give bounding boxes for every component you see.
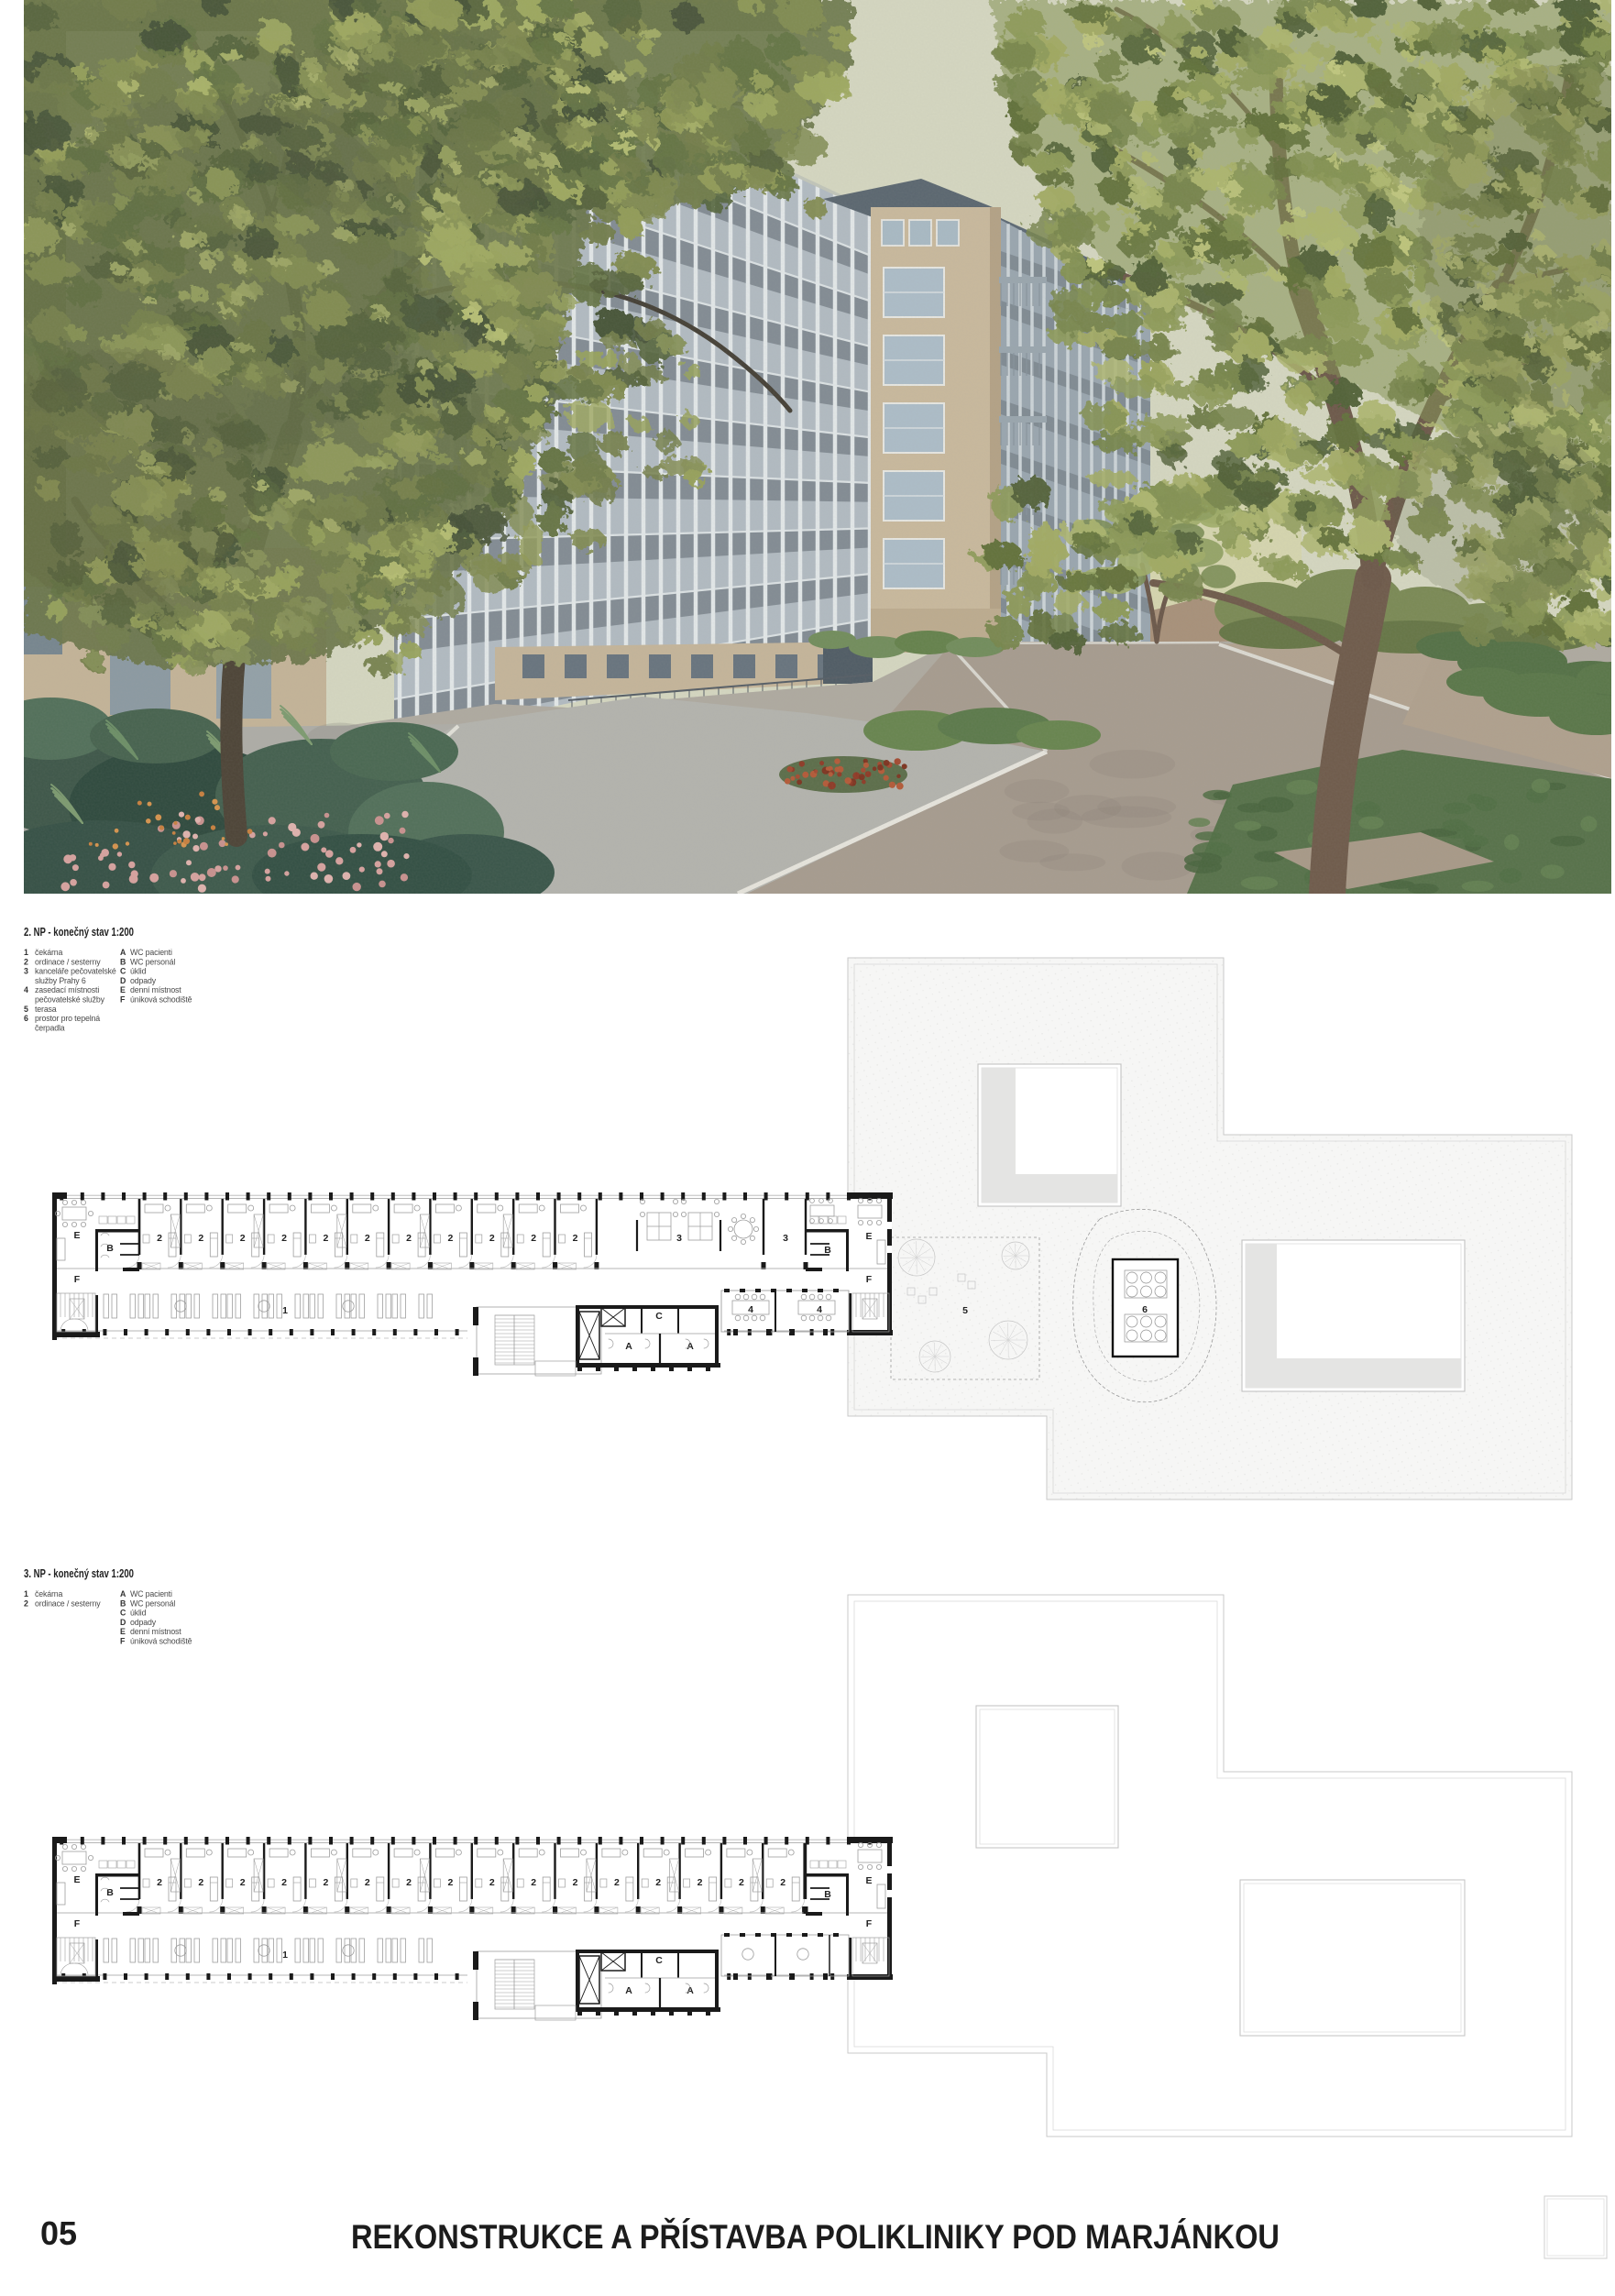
svg-text:2: 2 <box>655 1877 661 1888</box>
svg-text:WC personál: WC personál <box>130 1598 175 1608</box>
svg-text:2: 2 <box>157 1233 162 1244</box>
svg-text:REKONSTRUKCE A PŘÍSTAVBA POLIK: REKONSTRUKCE A PŘÍSTAVBA POLIKLINIKY POD… <box>351 2217 1280 2256</box>
svg-text:E: E <box>73 1874 80 1885</box>
svg-text:4: 4 <box>817 1304 822 1315</box>
svg-text:2: 2 <box>614 1877 620 1888</box>
svg-text:2: 2 <box>365 1233 370 1244</box>
svg-text:2: 2 <box>531 1877 536 1888</box>
svg-text:1: 1 <box>282 1305 288 1316</box>
svg-text:čerpadla: čerpadla <box>35 1023 65 1032</box>
svg-text:1: 1 <box>24 1589 28 1598</box>
svg-text:2: 2 <box>406 1233 412 1244</box>
svg-text:čekárna: čekárna <box>35 948 63 957</box>
svg-text:čekárna: čekárna <box>35 1589 63 1598</box>
svg-text:2: 2 <box>198 1233 203 1244</box>
svg-text:služby Prahy 6: služby Prahy 6 <box>35 976 86 985</box>
svg-text:E: E <box>120 985 126 994</box>
svg-text:4: 4 <box>748 1304 753 1315</box>
svg-text:4: 4 <box>24 985 28 994</box>
svg-text:2: 2 <box>157 1877 162 1888</box>
svg-text:C: C <box>120 1609 126 1618</box>
svg-text:05: 05 <box>40 2214 77 2252</box>
svg-text:2: 2 <box>323 1877 328 1888</box>
svg-text:2: 2 <box>698 1877 703 1888</box>
svg-text:6: 6 <box>24 1014 28 1023</box>
svg-text:B: B <box>120 1598 126 1608</box>
svg-text:E: E <box>865 1875 872 1886</box>
svg-text:2: 2 <box>573 1877 578 1888</box>
svg-text:2: 2 <box>198 1877 203 1888</box>
svg-text:2: 2 <box>24 1598 28 1608</box>
svg-text:2: 2 <box>489 1233 495 1244</box>
svg-text:2: 2 <box>281 1877 287 1888</box>
svg-text:5: 5 <box>24 1005 28 1014</box>
svg-text:WC pacienti: WC pacienti <box>130 1589 172 1598</box>
svg-text:3: 3 <box>24 967 28 976</box>
svg-text:WC pacienti: WC pacienti <box>130 948 172 957</box>
svg-text:A: A <box>625 1341 632 1352</box>
svg-text:2: 2 <box>447 1233 453 1244</box>
svg-text:2. NP - konečný stav 1:200: 2. NP - konečný stav 1:200 <box>24 926 134 939</box>
svg-text:6: 6 <box>1142 1304 1148 1315</box>
svg-text:F: F <box>120 1637 126 1646</box>
svg-text:D: D <box>120 1618 126 1627</box>
svg-text:1: 1 <box>24 948 28 957</box>
svg-text:A: A <box>120 948 126 957</box>
svg-text:WC personál: WC personál <box>130 957 175 966</box>
svg-text:zasedací místnosti: zasedací místnosti <box>35 985 99 994</box>
svg-text:odpady: odpady <box>130 1618 157 1627</box>
svg-text:3: 3 <box>783 1233 788 1244</box>
svg-text:2: 2 <box>281 1233 287 1244</box>
svg-text:2: 2 <box>489 1877 495 1888</box>
svg-text:2: 2 <box>240 1233 246 1244</box>
svg-text:2: 2 <box>240 1877 246 1888</box>
svg-text:kanceláře pečovatelské: kanceláře pečovatelské <box>35 967 116 976</box>
svg-text:5: 5 <box>962 1305 968 1316</box>
svg-text:2: 2 <box>323 1233 328 1244</box>
svg-text:ordinace / sesterny: ordinace / sesterny <box>35 1598 101 1608</box>
svg-text:denní místnost: denní místnost <box>130 985 181 994</box>
svg-text:2: 2 <box>365 1877 370 1888</box>
svg-text:F: F <box>866 1274 873 1285</box>
svg-text:pečovatelské služby: pečovatelské služby <box>35 995 105 1005</box>
svg-text:3. NP - konečný stav 1:200: 3. NP - konečný stav 1:200 <box>24 1567 134 1580</box>
svg-text:2: 2 <box>447 1877 453 1888</box>
svg-text:denní místnost: denní místnost <box>130 1627 181 1636</box>
svg-text:A: A <box>625 1985 632 1996</box>
svg-text:E: E <box>865 1231 872 1242</box>
svg-text:2: 2 <box>739 1877 744 1888</box>
svg-text:terasa: terasa <box>35 1005 57 1014</box>
svg-text:F: F <box>120 995 126 1005</box>
svg-text:C: C <box>655 1955 663 1966</box>
svg-text:A: A <box>120 1589 126 1598</box>
svg-text:3: 3 <box>676 1233 682 1244</box>
svg-text:E: E <box>120 1627 126 1636</box>
svg-text:C: C <box>655 1311 663 1322</box>
svg-text:C: C <box>120 967 126 976</box>
svg-text:2: 2 <box>24 957 28 966</box>
svg-text:E: E <box>73 1230 80 1241</box>
svg-text:D: D <box>120 976 126 985</box>
svg-text:prostor pro tepelná: prostor pro tepelná <box>35 1014 100 1023</box>
svg-text:úniková schodiště: úniková schodiště <box>130 1637 192 1646</box>
svg-text:úklid: úklid <box>130 967 147 976</box>
svg-text:2: 2 <box>531 1233 536 1244</box>
svg-text:2: 2 <box>780 1877 786 1888</box>
svg-text:1: 1 <box>282 1950 288 1961</box>
svg-text:ordinace / sesterny: ordinace / sesterny <box>35 957 101 966</box>
svg-text:úklid: úklid <box>130 1609 147 1618</box>
svg-text:2: 2 <box>573 1233 578 1244</box>
svg-text:F: F <box>74 1274 81 1285</box>
svg-text:odpady: odpady <box>130 976 157 985</box>
svg-text:F: F <box>74 1918 81 1929</box>
svg-text:2: 2 <box>406 1877 412 1888</box>
svg-text:úniková schodiště: úniková schodiště <box>130 995 192 1005</box>
svg-text:F: F <box>866 1918 873 1929</box>
svg-text:B: B <box>120 957 126 966</box>
